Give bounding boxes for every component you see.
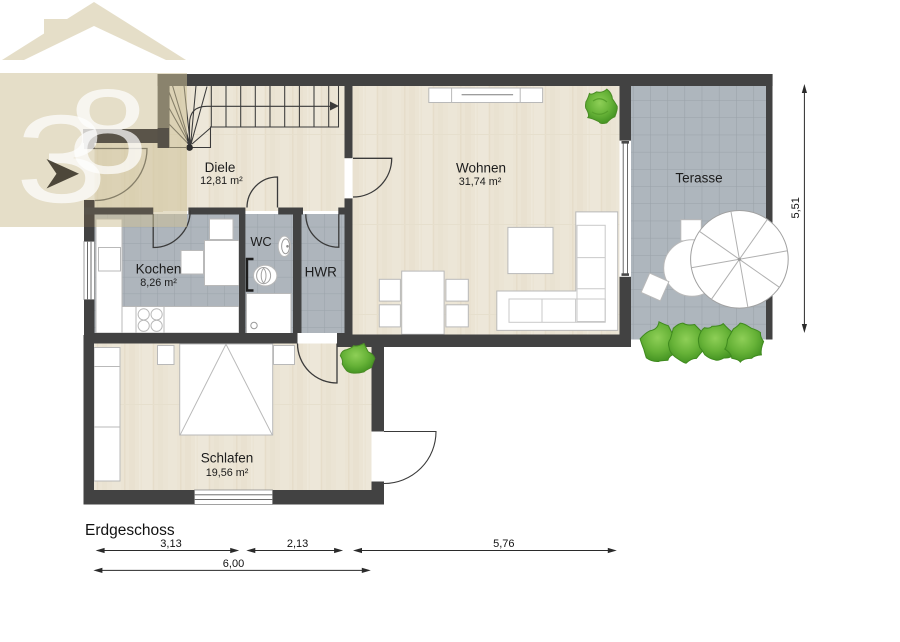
svg-text:Kochen: Kochen	[136, 262, 182, 277]
svg-text:8,26 m²: 8,26 m²	[140, 277, 177, 289]
svg-text:12,81 m²: 12,81 m²	[200, 175, 243, 187]
svg-text:Schlafen: Schlafen	[201, 451, 254, 466]
svg-text:WC: WC	[250, 234, 271, 249]
svg-text:Wohnen: Wohnen	[456, 161, 506, 176]
svg-text:Erdgeschoss: Erdgeschoss	[85, 522, 175, 539]
svg-text:2,13: 2,13	[287, 538, 308, 550]
svg-text:Terasse: Terasse	[675, 171, 722, 186]
svg-text:3,13: 3,13	[160, 538, 181, 550]
svg-text:3: 3	[15, 90, 108, 229]
svg-text:6,00: 6,00	[223, 558, 244, 570]
svg-text:Diele: Diele	[205, 160, 236, 175]
svg-text:5,76: 5,76	[493, 538, 514, 550]
svg-text:HWR: HWR	[305, 265, 337, 280]
svg-text:5,51: 5,51	[790, 197, 802, 218]
svg-text:31,74 m²: 31,74 m²	[459, 176, 502, 188]
svg-text:19,56 m²: 19,56 m²	[206, 467, 249, 479]
